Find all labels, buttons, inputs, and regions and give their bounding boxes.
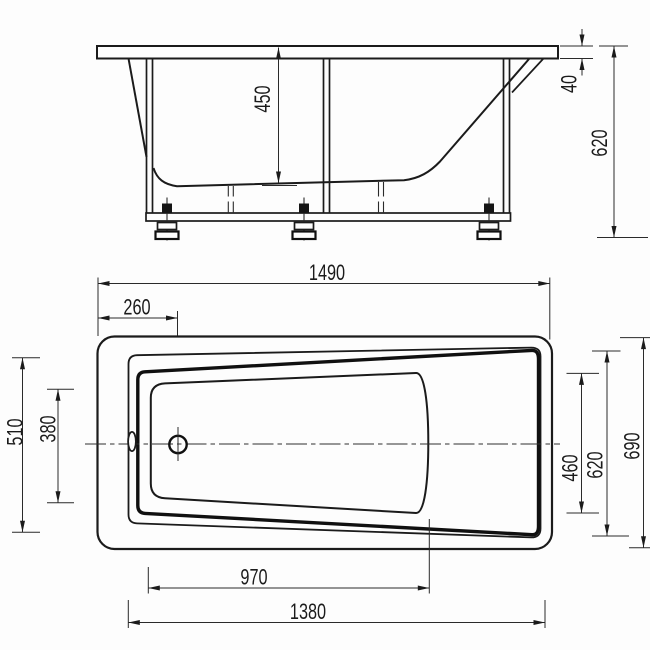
dim-label: 1490 <box>309 260 345 285</box>
side-view: 450 40 620 <box>97 29 648 241</box>
tub-rim-side <box>97 46 558 59</box>
bathtub-technical-drawing: 450 40 620 <box>0 0 650 650</box>
dim-head-rim-width: 510 <box>3 358 40 533</box>
extension-line <box>47 389 74 503</box>
dim-drain-offset: 260 <box>98 295 178 336</box>
dim-label: 510 <box>3 418 28 445</box>
dim-label: 620 <box>587 129 612 156</box>
dim-label: 620 <box>583 451 608 478</box>
extension-line <box>560 46 593 59</box>
dim-rim-height: 40 <box>557 29 593 93</box>
frame-base-rail <box>146 213 511 221</box>
frame-posts <box>147 59 510 214</box>
dim-label: 40 <box>557 75 582 93</box>
drawing-canvas: 450 40 620 <box>0 0 650 650</box>
dim-inner-rim-length: 1380 <box>128 599 545 628</box>
frame-brace-right <box>512 59 544 93</box>
overflow-hole <box>128 432 136 451</box>
tub-profile <box>154 59 530 186</box>
extension-line <box>128 600 545 628</box>
dim-overall-width: 690 <box>620 338 650 548</box>
plan-view: 1490 260 510 380 460 620 <box>3 260 650 628</box>
extension-line <box>567 373 600 513</box>
dim-interior-depth: 450 <box>250 48 297 186</box>
extension-line <box>98 278 550 340</box>
dim-label: 690 <box>620 432 645 459</box>
dim-label: 380 <box>36 415 61 442</box>
tub-outer-edge <box>98 337 553 550</box>
dim-label: 450 <box>250 85 275 112</box>
dim-label: 260 <box>123 295 150 320</box>
dim-label: 970 <box>240 565 267 590</box>
dim-head-bottom-width: 380 <box>36 389 74 503</box>
dim-overall-height: 620 <box>587 46 648 238</box>
dim-foot-bottom-width: 460 <box>558 373 599 513</box>
dim-label: 1380 <box>290 599 326 624</box>
dim-overall-length: 1490 <box>98 260 550 339</box>
tub-left-wall <box>129 59 147 158</box>
dim-label: 460 <box>558 454 583 481</box>
